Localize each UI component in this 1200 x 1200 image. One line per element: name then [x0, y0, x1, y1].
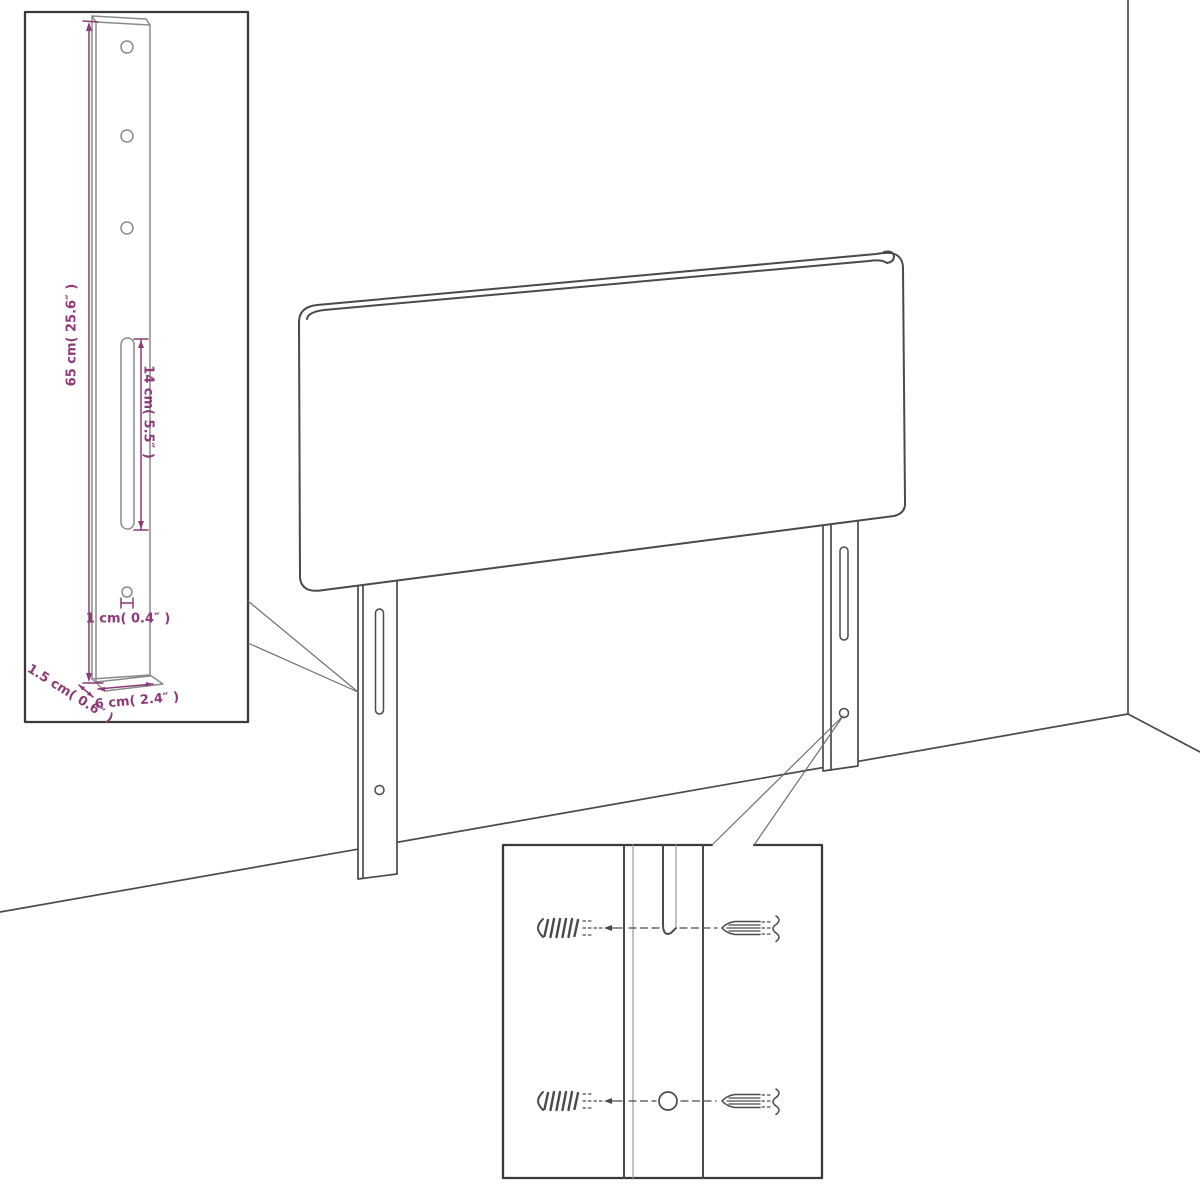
label-leg-width: 6 cm( 2.4″ ): [94, 690, 180, 712]
headboard-leg-right: [823, 510, 858, 771]
callout-leg-lower: [248, 643, 358, 692]
callout-mount-right: [754, 716, 843, 845]
dim-height-arrow-down: [86, 673, 92, 682]
leg-small-hole: [122, 587, 132, 597]
headboard-leg-left: [358, 572, 397, 879]
dim-height-arrow-up: [86, 22, 92, 31]
callout-mount-left: [712, 716, 843, 845]
callout-leg-upper: [248, 601, 358, 692]
inset-leg-detail: 65 cm( 25.6″ ) 14 cm( 5.5″ ) 1 cm( 0.4″ …: [24, 12, 248, 726]
leg-hole-top: [121, 41, 133, 53]
leg-hole-mid: [121, 130, 133, 142]
label-leg-height: 65 cm( 25.6″ ): [65, 284, 80, 387]
label-hole-diameter: 1 cm( 0.4″ ): [86, 612, 171, 627]
headboard-panel: [299, 252, 905, 591]
leg-right-slot: [840, 547, 848, 640]
leg-left-hole: [375, 786, 384, 795]
label-slot-length: 14 cm( 5.5″ ): [141, 365, 156, 459]
leg-right-hole: [840, 709, 849, 718]
diagram-page: 65 cm( 25.6″ ) 14 cm( 5.5″ ) 1 cm( 0.4″ …: [0, 0, 1200, 1200]
dim-slot-arrow-up: [138, 340, 144, 348]
inset-leg-drawing: [92, 16, 163, 691]
leg-slot: [121, 338, 134, 529]
dim-height-tick-top: [83, 21, 98, 22]
headboard-dimension-diagram: 65 cm( 25.6″ ) 14 cm( 5.5″ ) 1 cm( 0.4″ …: [0, 0, 1200, 1200]
callout-lines: [248, 601, 843, 845]
inset-leg-labels: 65 cm( 25.6″ ) 14 cm( 5.5″ ) 1 cm( 0.4″ …: [24, 284, 180, 727]
leg-left-slot: [376, 609, 384, 714]
dim-slot-arrow-down: [138, 521, 144, 529]
inset-mount-detail: [503, 845, 822, 1178]
mount-hole: [659, 1092, 677, 1110]
leg-hole-low: [121, 222, 133, 234]
label-leg-thickness: 1.5 cm( 0.6″ ): [24, 662, 116, 727]
inset-leg-dimensions: [79, 21, 153, 697]
leg-top-face: [92, 16, 150, 25]
